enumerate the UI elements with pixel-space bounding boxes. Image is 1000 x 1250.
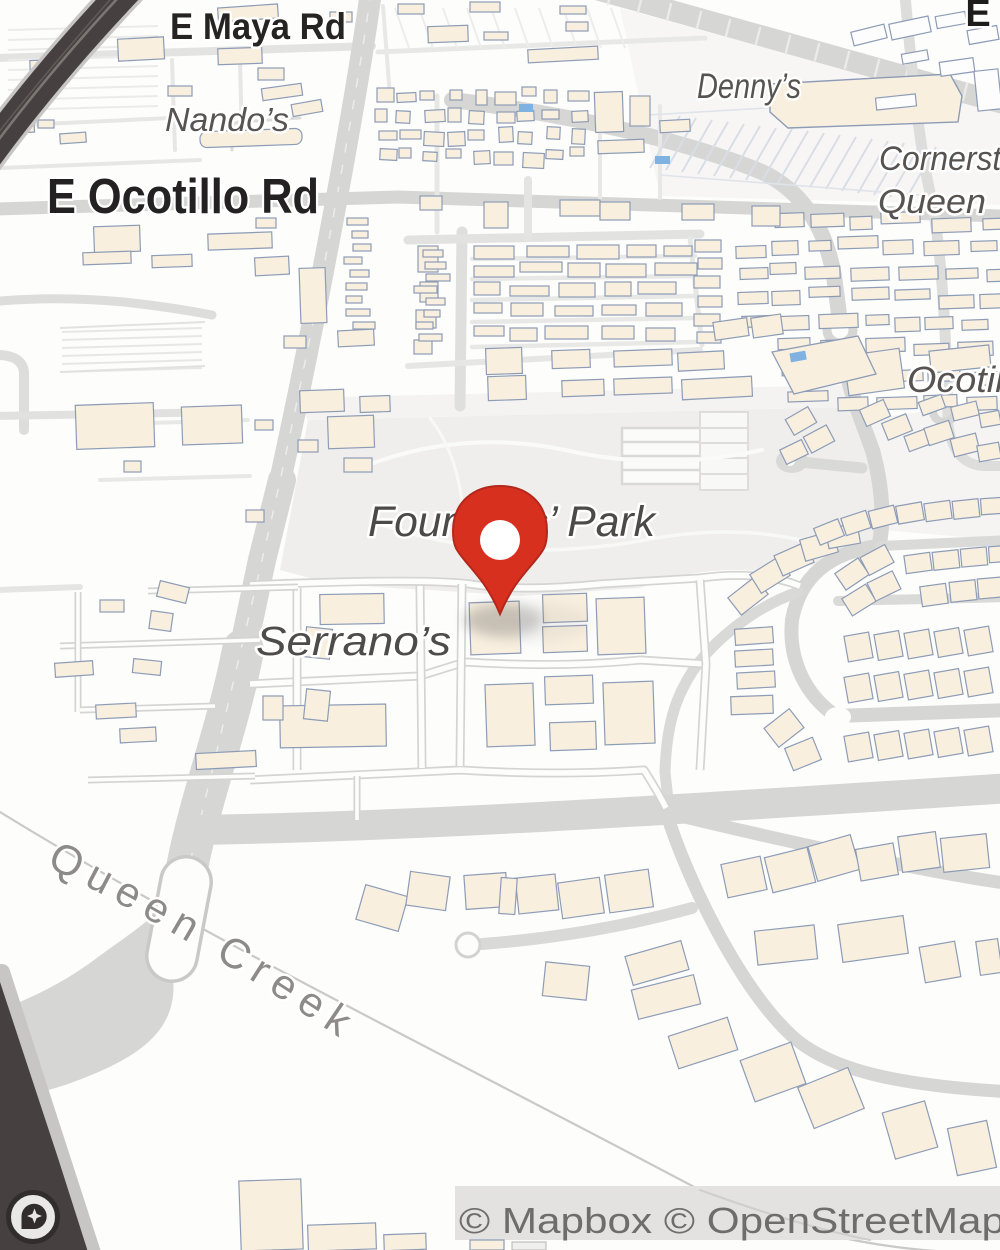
svg-text:Nando’s: Nando’s: [165, 101, 289, 138]
svg-text:Denny’s: Denny’s: [697, 67, 801, 106]
svg-text:E: E: [965, 0, 990, 35]
svg-text:E Ocotillo Rd: E Ocotillo Rd: [47, 170, 319, 224]
svg-text:© Mapbox © OpenStreetMap: © Mapbox © OpenStreetMap: [459, 1200, 1000, 1241]
svg-text:Cornersto: Cornersto: [879, 140, 1000, 178]
svg-text:E Maya Rd: E Maya Rd: [170, 6, 346, 47]
svg-text:Serrano’s: Serrano’s: [256, 618, 451, 664]
svg-text:Queen: Queen: [878, 183, 986, 221]
svg-text:Ocotill: Ocotill: [907, 359, 1000, 400]
